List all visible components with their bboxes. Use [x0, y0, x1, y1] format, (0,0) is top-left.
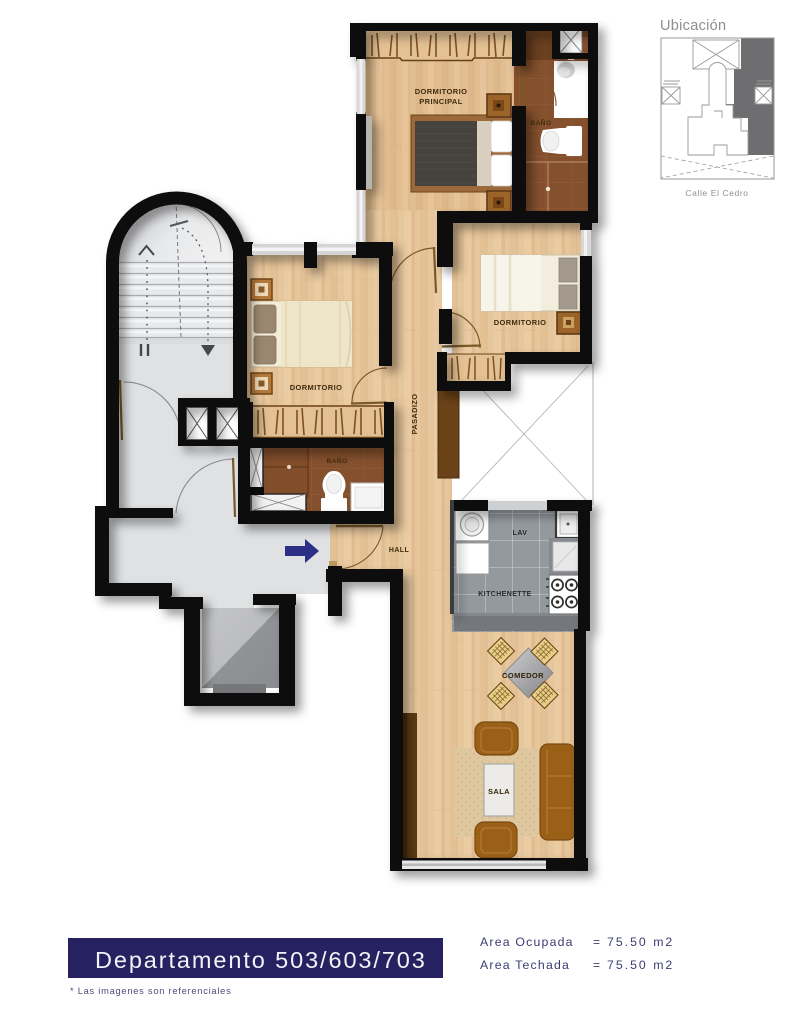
- svg-text:Calle El Cedro: Calle El Cedro: [685, 188, 748, 198]
- svg-text:Ubicación: Ubicación: [660, 18, 726, 34]
- svg-text:HALL: HALL: [389, 547, 410, 554]
- svg-text:BAÑO: BAÑO: [530, 118, 551, 127]
- svg-text:Area Techada: Area Techada: [480, 958, 570, 972]
- svg-text:Departamento 503/603/703: Departamento 503/603/703: [95, 947, 427, 973]
- svg-text:DORMITORIO: DORMITORIO: [290, 383, 343, 392]
- svg-text:DORMITORIO: DORMITORIO: [415, 87, 468, 96]
- svg-text:75.50 m2: 75.50 m2: [607, 958, 674, 972]
- svg-text:* Las imagenes son referencial: * Las imagenes son referenciales: [70, 986, 231, 996]
- svg-text:COMEDOR: COMEDOR: [502, 671, 544, 680]
- svg-text:=: =: [593, 935, 600, 949]
- svg-text:=: =: [593, 958, 600, 972]
- svg-text:BAÑO: BAÑO: [326, 456, 347, 465]
- svg-text:KITCHENETTE: KITCHENETTE: [478, 591, 531, 598]
- svg-text:Area Ocupada: Area Ocupada: [480, 935, 574, 949]
- svg-text:DORMITORIO: DORMITORIO: [494, 318, 547, 327]
- svg-text:75.50 m2: 75.50 m2: [607, 935, 674, 949]
- svg-text:PRINCIPAL: PRINCIPAL: [419, 97, 462, 106]
- svg-text:PASADIZO: PASADIZO: [410, 394, 419, 435]
- svg-text:SALA: SALA: [488, 787, 510, 796]
- svg-text:LAV: LAV: [513, 530, 528, 537]
